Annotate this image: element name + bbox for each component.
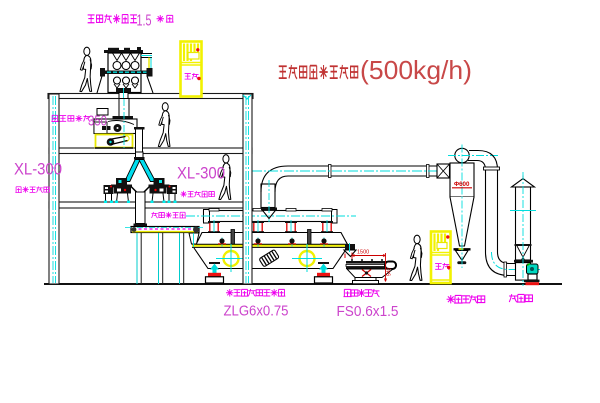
svg-text:FS0.6x1.5: FS0.6x1.5 bbox=[337, 304, 399, 320]
svg-text:ZLG6x0.75: ZLG6x0.75 bbox=[224, 304, 289, 320]
svg-text:350: 350 bbox=[88, 114, 107, 130]
svg-text:1.5: 1.5 bbox=[137, 13, 152, 30]
svg-text:XL-300: XL-300 bbox=[14, 161, 62, 179]
svg-text:1500: 1500 bbox=[357, 250, 369, 256]
svg-text:(500kg/h): (500kg/h) bbox=[360, 55, 472, 85]
svg-text:Φ600: Φ600 bbox=[454, 181, 470, 188]
svg-text:540: 540 bbox=[387, 267, 393, 276]
svg-text:XL-300: XL-300 bbox=[177, 165, 225, 183]
